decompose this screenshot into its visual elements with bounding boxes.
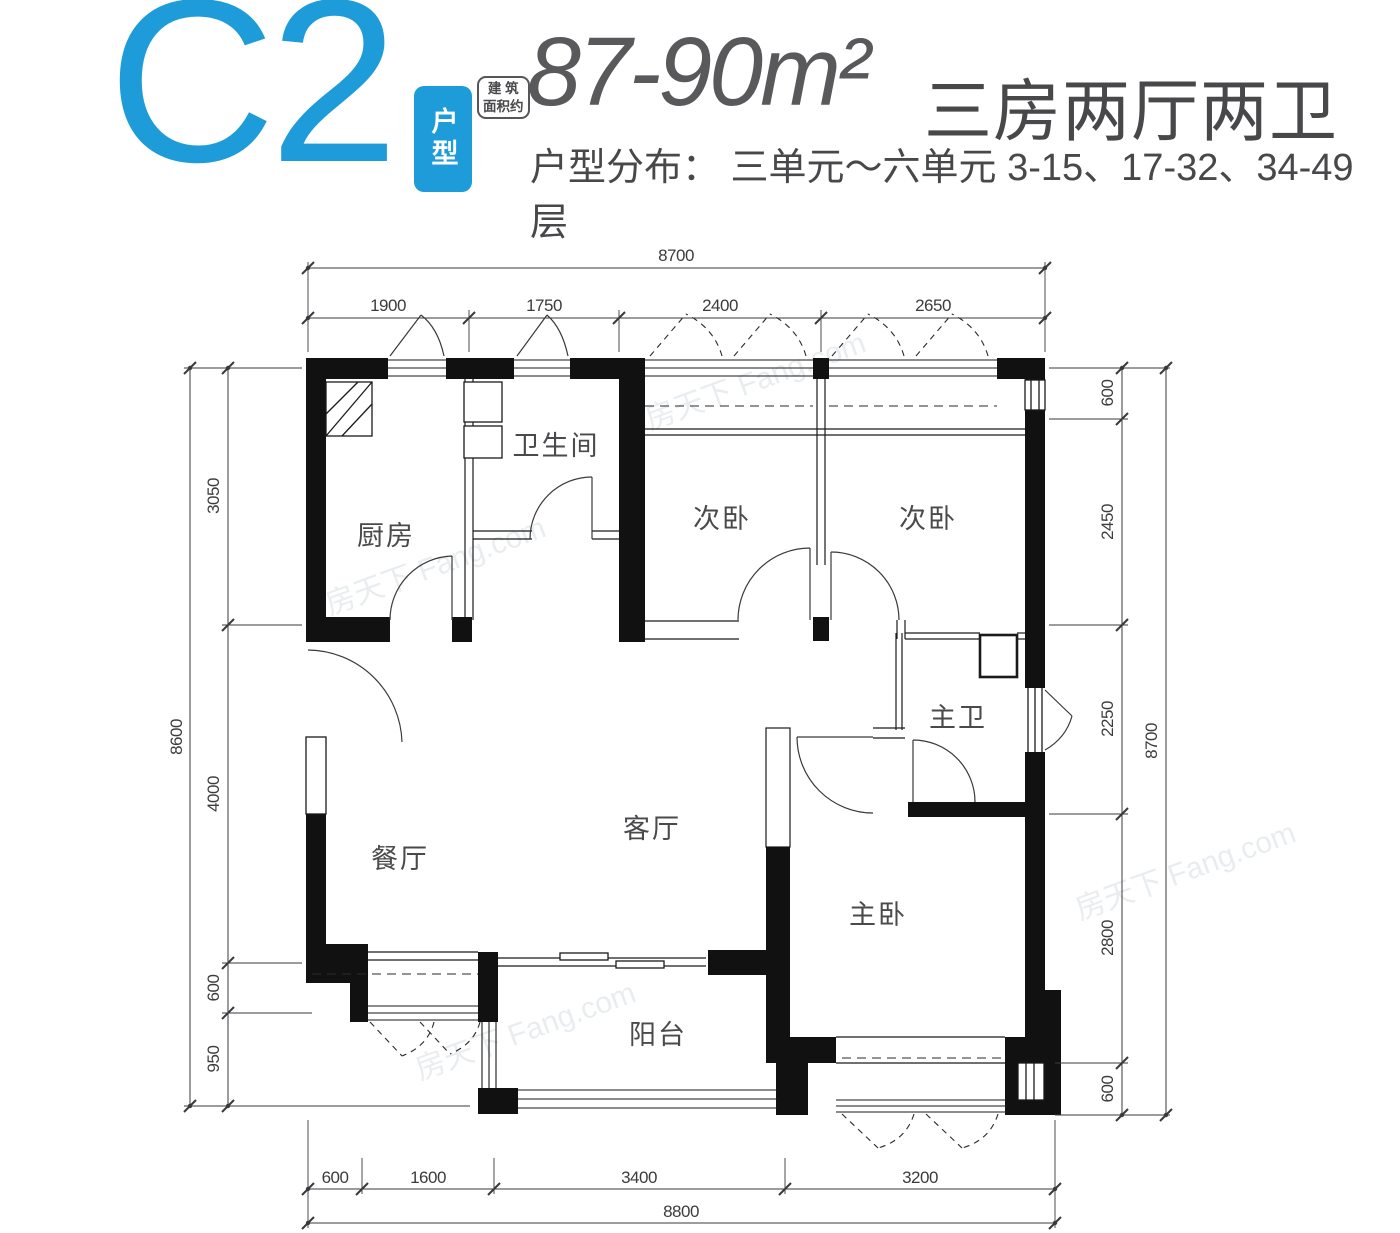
dim-right-seg: 2450	[1098, 504, 1117, 540]
room-label-master-bedroom: 主卧	[849, 900, 907, 930]
walls	[306, 358, 1061, 1115]
flue-symbol	[326, 382, 372, 436]
dim-left-seg: 600	[204, 975, 223, 1002]
room-label-dining: 餐厅	[371, 844, 429, 874]
floorplan-page: C2 户型 建 筑 面积约 87-90m² 三房两厅两卫 户型分布： 三单元～六…	[0, 0, 1400, 1233]
wall-openings	[306, 380, 1045, 1100]
room-label-living: 客厅	[623, 814, 681, 844]
dim-top-seg: 2400	[702, 296, 738, 315]
watermark: 房天下 Fang.com	[1071, 816, 1300, 926]
dim-left-seg: 950	[204, 1046, 223, 1073]
room-label-balcony: 阳台	[629, 1020, 687, 1050]
partition-lines	[368, 379, 1025, 1063]
dim-bottom-seg: 600	[322, 1168, 349, 1187]
dim-bottom-seg: 3200	[902, 1168, 938, 1187]
dim-top-seg: 1900	[370, 296, 406, 315]
room-label-bedroom2a: 次卧	[693, 504, 751, 534]
watermark: 房天下 Fang.com	[641, 326, 870, 436]
dim-right-overall: 8700	[1142, 723, 1161, 759]
room-label-kitchen: 厨房	[357, 521, 415, 551]
dim-bottom-overall: 8800	[663, 1202, 699, 1221]
dim-right-seg: 600	[1098, 1076, 1117, 1103]
dim-right-seg: 2250	[1098, 701, 1117, 737]
floor-plan-drawing: 房天下 Fang.com 房天下 Fang.com 房天下 Fang.com 房…	[0, 0, 1400, 1233]
dim-right-seg: 2800	[1098, 920, 1117, 956]
watermark: 房天下 Fang.com	[411, 976, 640, 1086]
room-labels: 厨房 卫生间 次卧 次卧 主卫 客厅 餐厅 主卧 阳台	[357, 431, 987, 1050]
dim-right-seg: 600	[1098, 380, 1117, 407]
watermark: 房天下 Fang.com	[321, 511, 550, 621]
room-label-master-bath: 主卫	[929, 703, 987, 733]
dim-left-overall: 8600	[167, 719, 186, 755]
room-label-bath: 卫生间	[513, 431, 600, 461]
dim-top-overall: 8700	[658, 246, 694, 265]
dim-left-seg: 3050	[204, 478, 223, 514]
dim-top-seg: 2650	[915, 296, 951, 315]
dim-bottom-seg: 3400	[621, 1168, 657, 1187]
dim-bottom-seg: 1600	[410, 1168, 446, 1187]
dim-top-seg: 1750	[526, 296, 562, 315]
dim-left-seg: 4000	[204, 776, 223, 812]
windows	[368, 360, 1007, 1112]
room-label-bedroom2b: 次卧	[899, 504, 957, 534]
